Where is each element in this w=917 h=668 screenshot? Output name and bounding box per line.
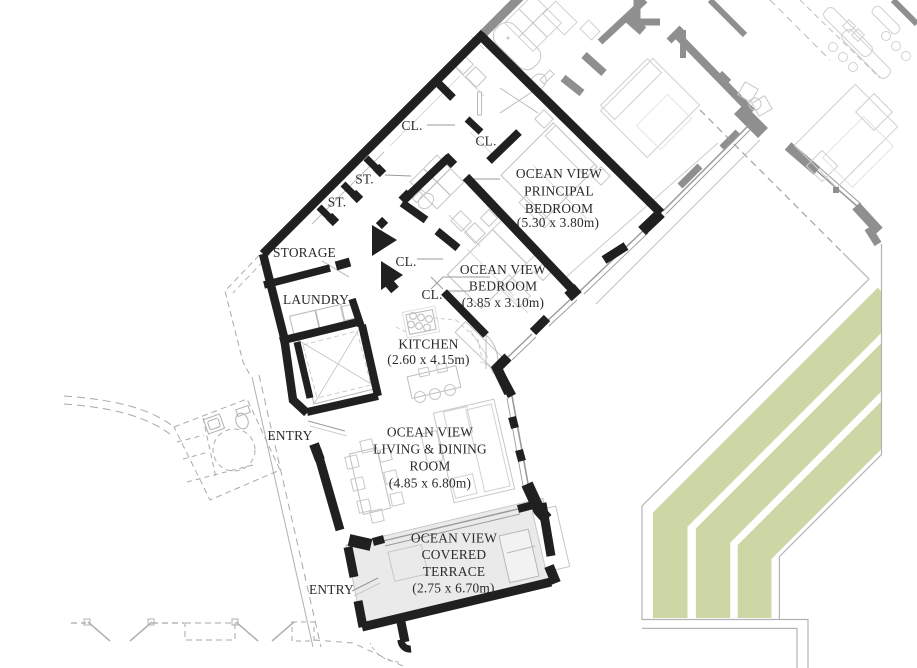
svg-text:OCEAN VIEW: OCEAN VIEW	[411, 531, 497, 546]
svg-text:CL.: CL.	[421, 287, 442, 302]
svg-text:ST.: ST.	[355, 172, 374, 187]
svg-text:STORAGE: STORAGE	[273, 245, 336, 260]
svg-text:LIVING & DINING: LIVING & DINING	[373, 442, 487, 457]
svg-text:OCEAN VIEW: OCEAN VIEW	[460, 262, 546, 277]
svg-text:CL.: CL.	[395, 254, 416, 269]
svg-text:ENTRY: ENTRY	[309, 582, 354, 597]
svg-text:ROOM: ROOM	[410, 459, 451, 474]
svg-text:CL.: CL.	[475, 134, 496, 149]
svg-text:(2.60 x 4.15m): (2.60 x 4.15m)	[387, 352, 469, 367]
svg-text:KITCHEN: KITCHEN	[398, 337, 458, 352]
svg-text:ENTRY: ENTRY	[268, 428, 313, 443]
svg-text:(5.30 x 3.80m): (5.30 x 3.80m)	[517, 215, 599, 230]
svg-text:PRINCIPAL: PRINCIPAL	[524, 184, 594, 199]
svg-text:TERRACE: TERRACE	[423, 564, 485, 579]
svg-text:ST.: ST.	[328, 195, 347, 210]
svg-text:CL.: CL.	[401, 118, 422, 133]
svg-text:OCEAN VIEW: OCEAN VIEW	[387, 425, 473, 440]
svg-text:BEDROOM: BEDROOM	[525, 201, 593, 216]
svg-text:OCEAN VIEW: OCEAN VIEW	[516, 166, 602, 181]
svg-text:BEDROOM: BEDROOM	[469, 278, 537, 293]
svg-text:(4.85 x 6.80m): (4.85 x 6.80m)	[389, 476, 471, 491]
svg-text:(2.75 x 6.70m): (2.75 x 6.70m)	[412, 581, 494, 596]
svg-text:(3.85 x 3.10m): (3.85 x 3.10m)	[462, 295, 544, 310]
svg-text:COVERED: COVERED	[422, 547, 487, 562]
svg-text:LAUNDRY: LAUNDRY	[283, 292, 349, 307]
